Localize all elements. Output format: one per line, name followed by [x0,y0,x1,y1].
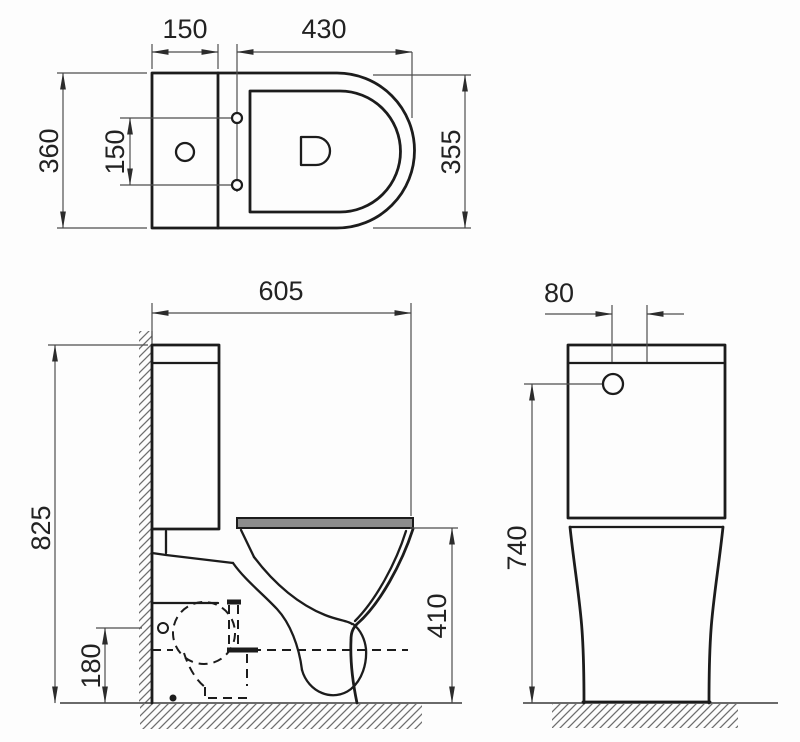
dim-overall-length: 605 [152,276,411,516]
fixing-dot [170,695,177,702]
dim-label-hinge-hole-spacing: 150 [100,129,130,174]
cistern-front-outline [568,345,725,518]
cistern-side-outline [152,345,219,529]
side-view: 605 825 180 410 [26,276,462,729]
pedestal-right-edge [709,527,723,703]
dim-label-overall-length: 605 [258,276,303,306]
front-view: 80 740 [502,278,778,728]
bowl-rear-ledge [152,531,233,563]
hinge-hole-bottom [232,180,242,190]
dim-label-seat-length: 430 [301,14,346,44]
bowl-rear-lip [241,530,254,557]
hidden-trap-lines [152,602,408,698]
dim-label-button-offset: 80 [544,278,574,308]
dim-label-bowl-depth: 355 [436,129,466,174]
trapway-back [233,563,302,670]
dim-label-rim-height: 410 [422,593,452,638]
dim-seat-length: 430 [237,14,412,192]
seat-lid-side [237,518,413,528]
dim-label-tank-width: 150 [162,14,207,44]
wall-hatching [139,331,152,703]
flush-button [176,143,194,161]
dim-fixing-height: 180 [76,628,142,703]
dim-inlet-height: 740 [502,384,602,703]
pedestal-left-edge [570,527,584,703]
bowl-cavity-line [254,557,352,624]
dim-label-overall-height: 825 [26,505,56,550]
hinge-hole-top [232,113,242,123]
trapway-bend [302,624,366,695]
fixing-hole [158,623,168,633]
dim-button-offset: 80 [544,278,684,362]
floor-hatching-front [552,704,738,728]
technical-drawing-sheet: 150 430 360 150 355 [0,0,800,742]
dim-bowl-depth: 355 [373,75,471,228]
dim-label-inlet-height: 740 [502,525,532,570]
dim-label-fixing-height: 180 [76,643,106,688]
dim-rim-height: 410 [410,528,458,703]
dim-hinge-hole-spacing: 150 [100,118,231,185]
dim-label-overall-depth: 360 [34,128,64,173]
water-inlet-hole [603,374,623,394]
dim-tank-width: 150 [152,14,218,69]
pan-plan-outline [152,73,415,228]
floor-hatching-side [140,704,422,729]
seat-plan-outline [250,91,400,212]
bowl-water-outline [301,137,330,165]
toilet-dimension-drawing: 150 430 360 150 355 [0,0,800,742]
top-view: 150 430 360 150 355 [34,14,471,228]
bowl-front-inner [355,531,406,621]
flush-valve-marks [227,602,258,650]
